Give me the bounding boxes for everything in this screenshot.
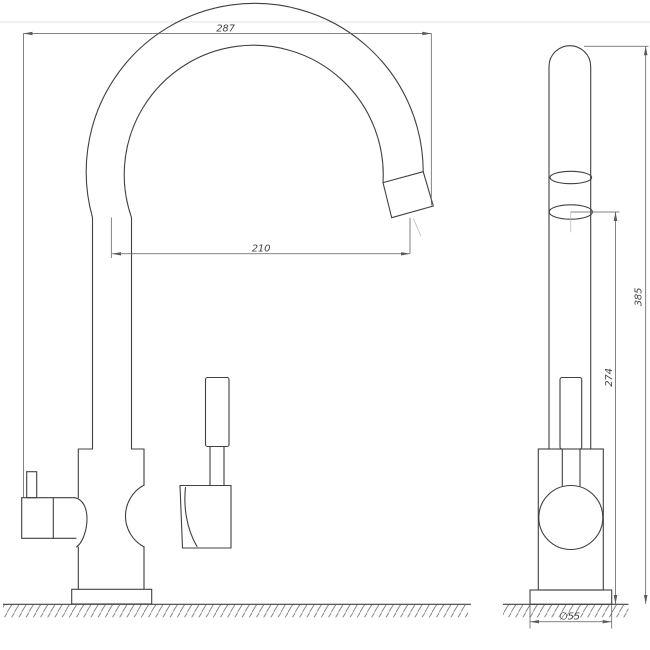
dim-210-leader: [414, 219, 422, 237]
dim-outlet-height: 274: [571, 212, 620, 604]
dim-label-overall-height: 385: [634, 288, 645, 307]
arrowhead: [530, 620, 539, 623]
dim-overall-width: 287: [24, 23, 432, 497]
ground-front: [3, 604, 471, 617]
arrowhead: [644, 595, 648, 604]
body-side: [538, 449, 603, 590]
dim-label-outlet-height: 274: [604, 368, 615, 387]
aerator-ring-ellipse: [550, 171, 592, 183]
front-view: [22, 3, 434, 604]
handle-stem: [210, 447, 224, 486]
arrowhead: [614, 595, 618, 604]
dim-287-lines: [24, 34, 432, 498]
ball-joint-side: [539, 486, 603, 550]
base-plate-side: [530, 590, 612, 604]
arrowhead: [603, 620, 612, 623]
arrowhead: [112, 252, 121, 255]
dim-label-overall-width: 287: [216, 23, 235, 34]
faucet-technical-drawing-page: 287 210 385 274 ∅55: [0, 0, 650, 650]
arrowhead: [614, 212, 618, 221]
dim-274-lines: [571, 212, 620, 604]
dim-label-spout-reach: 210: [252, 244, 271, 255]
left-lever-knob: [27, 472, 37, 498]
arrowhead: [401, 252, 410, 255]
ball-joint-arc: [125, 485, 143, 546]
faucet-technical-drawing: 287 210 385 274 ∅55: [0, 0, 650, 650]
dim-385-lines: [584, 46, 649, 604]
dim-overall-height: 385: [584, 46, 649, 604]
left-lever-body: [22, 498, 76, 539]
handle-base-curve: [185, 488, 197, 547]
ground-hatching-front: [3, 605, 468, 618]
side-view: [530, 46, 612, 605]
spout-column: [549, 46, 591, 449]
aerator-line: [383, 172, 423, 183]
handle-lever-side: [560, 378, 582, 450]
left-lever-mount-cap: [75, 498, 87, 547]
handle-base-housing: [180, 486, 231, 549]
arrowhead: [422, 32, 431, 35]
base-plate-front: [72, 589, 152, 604]
handle-lever: [206, 378, 230, 447]
arrowhead: [644, 46, 648, 55]
spout-outline: [86, 3, 433, 449]
dim-spout-reach: 210: [111, 218, 421, 259]
body-outline: [78, 449, 144, 589]
handle-stem-side: [562, 449, 580, 486]
dimensions: 287 210 385 274 ∅55: [24, 23, 649, 628]
dim-label-base-diameter: ∅55: [559, 612, 580, 623]
arrowhead: [24, 32, 33, 35]
